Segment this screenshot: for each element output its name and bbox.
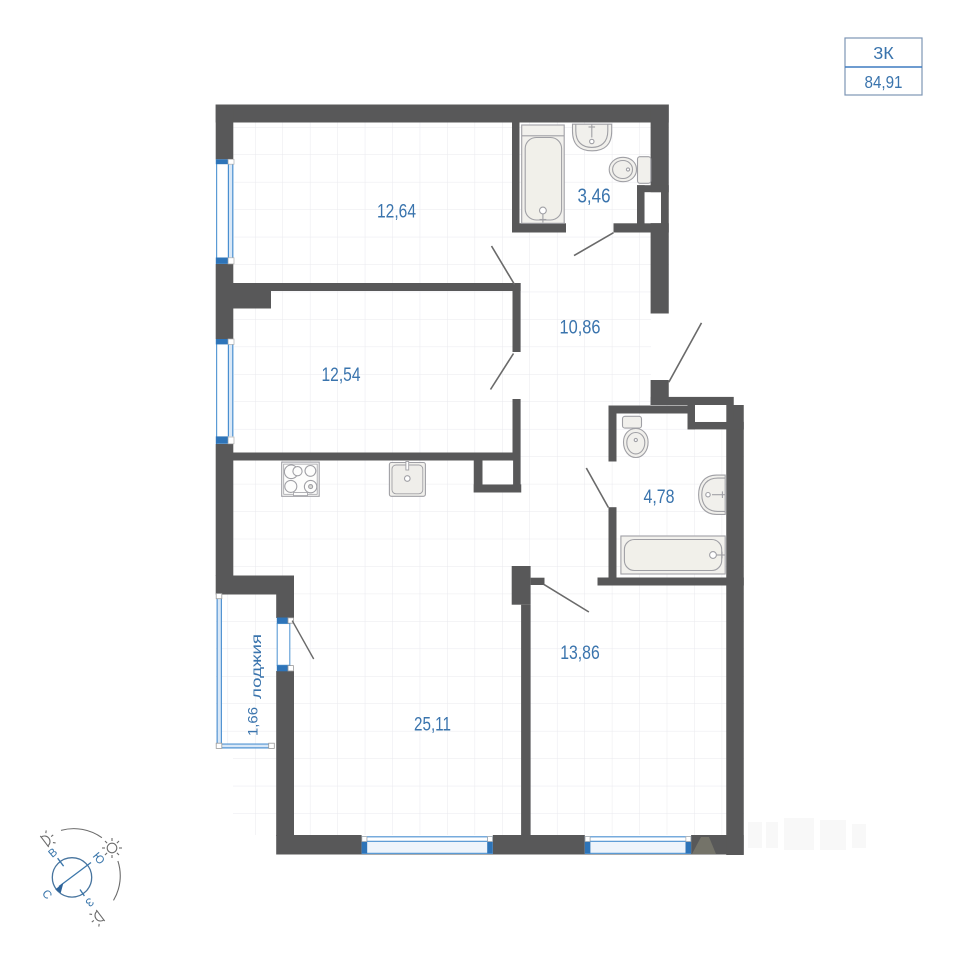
svg-text:12,64: 12,64 [377,201,416,223]
svg-text:13,86: 13,86 [560,642,600,664]
svg-text:3К: 3К [873,43,894,63]
svg-text:12,54: 12,54 [322,364,361,386]
svg-text:4,78: 4,78 [644,486,675,508]
svg-text:25,11: 25,11 [414,715,451,736]
svg-text:3,46: 3,46 [578,185,611,208]
svg-text:1,66: 1,66 [245,707,261,736]
svg-text:84,91: 84,91 [865,72,903,92]
svg-text:10,86: 10,86 [560,317,601,339]
svg-text:лоджия: лоджия [249,634,264,699]
